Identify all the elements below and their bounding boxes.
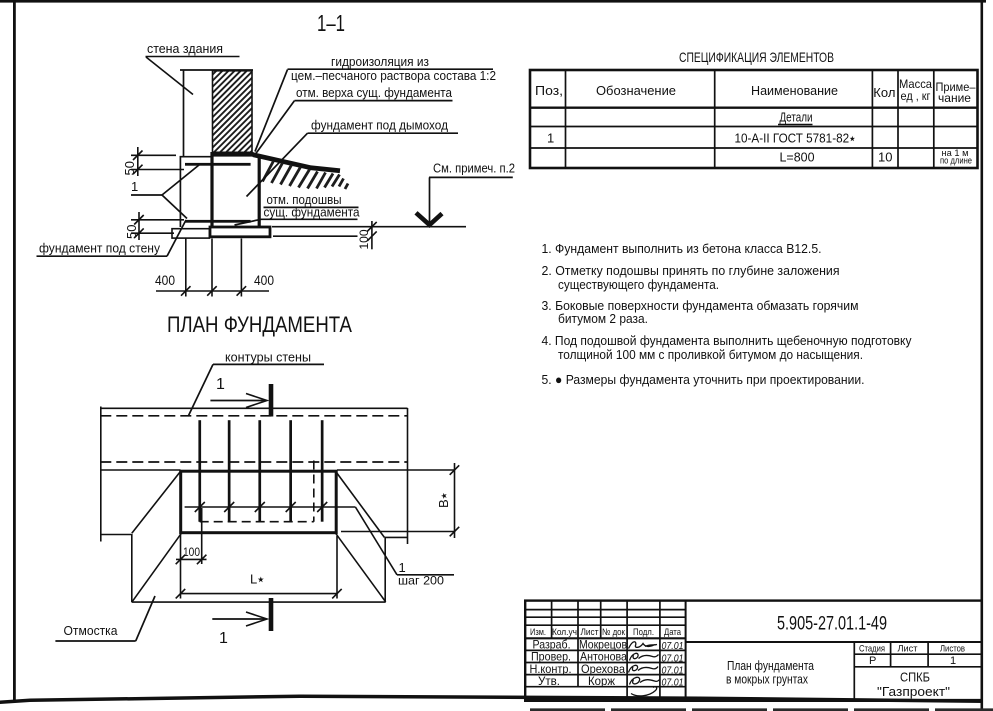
svg-text:в мокрых грунтах: в мокрых грунтах	[726, 673, 809, 687]
svg-text:400: 400	[155, 272, 175, 288]
svg-text:гидроизоляция из: гидроизоляция из	[331, 54, 429, 69]
svg-text:Лист: Лист	[898, 644, 919, 655]
svg-text:См. примеч. п.2: См. примеч. п.2	[433, 161, 515, 176]
svg-text:1: 1	[131, 179, 138, 194]
svg-text:цем.–песчаного раствора состав: цем.–песчаного раствора состава 1:2	[291, 68, 496, 83]
svg-text:5.905-27.01.1-49: 5.905-27.01.1-49	[777, 614, 887, 635]
svg-text:1: 1	[219, 630, 228, 647]
svg-text:07.01: 07.01	[662, 665, 684, 677]
svg-text:2. Отметку подошвы принять: 2. Отметку подошвы принять по глубине за…	[542, 263, 840, 278]
svg-text:50: 50	[122, 161, 137, 175]
svg-text:контуры стены: контуры стены	[225, 350, 311, 365]
svg-text:Поз,: Поз,	[535, 83, 563, 98]
svg-text:СПКБ: СПКБ	[900, 670, 930, 685]
svg-text:50: 50	[124, 225, 139, 239]
svg-text:№ док: № док	[602, 627, 626, 638]
svg-text:отм. верха сущ. фундамента: отм. верха сущ. фундамента	[296, 85, 453, 100]
svg-text:L٭: L٭	[250, 572, 264, 587]
svg-text:10: 10	[878, 150, 892, 165]
svg-text:5. ● Размеры фундамента ут: 5. ● Размеры фундамента уточнить при про…	[542, 372, 865, 387]
svg-text:фундамент под дымоход: фундамент под дымоход	[311, 118, 448, 133]
svg-text:толщиной 100 мм с проливко: толщиной 100 мм с проливкой битумом до н…	[558, 347, 863, 362]
svg-text:Лист: Лист	[581, 627, 600, 638]
svg-text:Обозначение: Обозначение	[596, 83, 676, 98]
svg-text:сущ. фундамента: сущ. фундамента	[264, 205, 361, 220]
svg-text:Подл.: Подл.	[633, 627, 654, 638]
svg-text:Стадия: Стадия	[859, 644, 885, 655]
svg-text:Р: Р	[869, 655, 876, 667]
svg-text:4. Под подошвой фундамента: 4. Под подошвой фундамента выполнить щеб…	[542, 333, 912, 348]
svg-text:Кол: Кол	[873, 85, 895, 100]
svg-text:1. Фундамент выполнить из: 1. Фундамент выполнить из бетона класса …	[542, 241, 822, 256]
svg-text:шаг 200: шаг 200	[398, 574, 444, 588]
svg-text:07.01: 07.01	[662, 677, 684, 689]
svg-text:07.01: 07.01	[662, 653, 684, 665]
svg-text:10-А-II ГОСТ 5781-82٭: 10-А-II ГОСТ 5781-82٭	[735, 132, 856, 146]
svg-text:существующего фундамента.: существующего фундамента.	[558, 277, 719, 292]
svg-text:битумом 2 раза.: битумом 2 раза.	[558, 311, 648, 326]
svg-text:ед , кг: ед , кг	[901, 89, 932, 103]
svg-text:1: 1	[950, 655, 956, 667]
svg-text:Дата: Дата	[664, 627, 682, 638]
svg-text:стена здания: стена здания	[147, 41, 223, 56]
svg-text:Отмостка: Отмостка	[64, 623, 119, 638]
svg-text:План фундамента: План фундамента	[727, 659, 814, 673]
svg-text:L=800: L=800	[780, 150, 815, 165]
svg-text:100: 100	[357, 229, 371, 249]
svg-text:1–1: 1–1	[317, 10, 345, 36]
svg-text:ПЛАН ФУНДАМЕНТА: ПЛАН ФУНДАМЕНТА	[167, 312, 352, 337]
svg-text:Корж: Корж	[588, 674, 615, 688]
svg-text:07.01: 07.01	[662, 640, 684, 652]
svg-text:В٭: В٭	[436, 492, 451, 508]
svg-text:Утв.: Утв.	[538, 674, 560, 688]
svg-text:100: 100	[183, 545, 200, 559]
svg-text:по длине: по длине	[940, 156, 972, 166]
svg-text:чание: чание	[938, 91, 971, 105]
svg-text:Кол.уч: Кол.уч	[552, 627, 577, 638]
svg-text:1: 1	[216, 376, 225, 393]
svg-text:1: 1	[547, 131, 554, 146]
svg-text:"Газпроект": "Газпроект"	[877, 684, 950, 699]
svg-text:Изм.: Изм.	[530, 627, 546, 638]
svg-text:фундамент под стену: фундамент под стену	[39, 241, 160, 256]
svg-text:400: 400	[254, 272, 274, 288]
svg-text:Наименование: Наименование	[751, 83, 838, 98]
svg-text:Листов: Листов	[940, 644, 965, 655]
svg-text:СПЕЦИФИКАЦИЯ ЭЛЕМЕНТОВ: СПЕЦИФИКАЦИЯ ЭЛЕМЕНТОВ	[679, 49, 834, 65]
svg-text:Детали: Детали	[780, 110, 813, 125]
